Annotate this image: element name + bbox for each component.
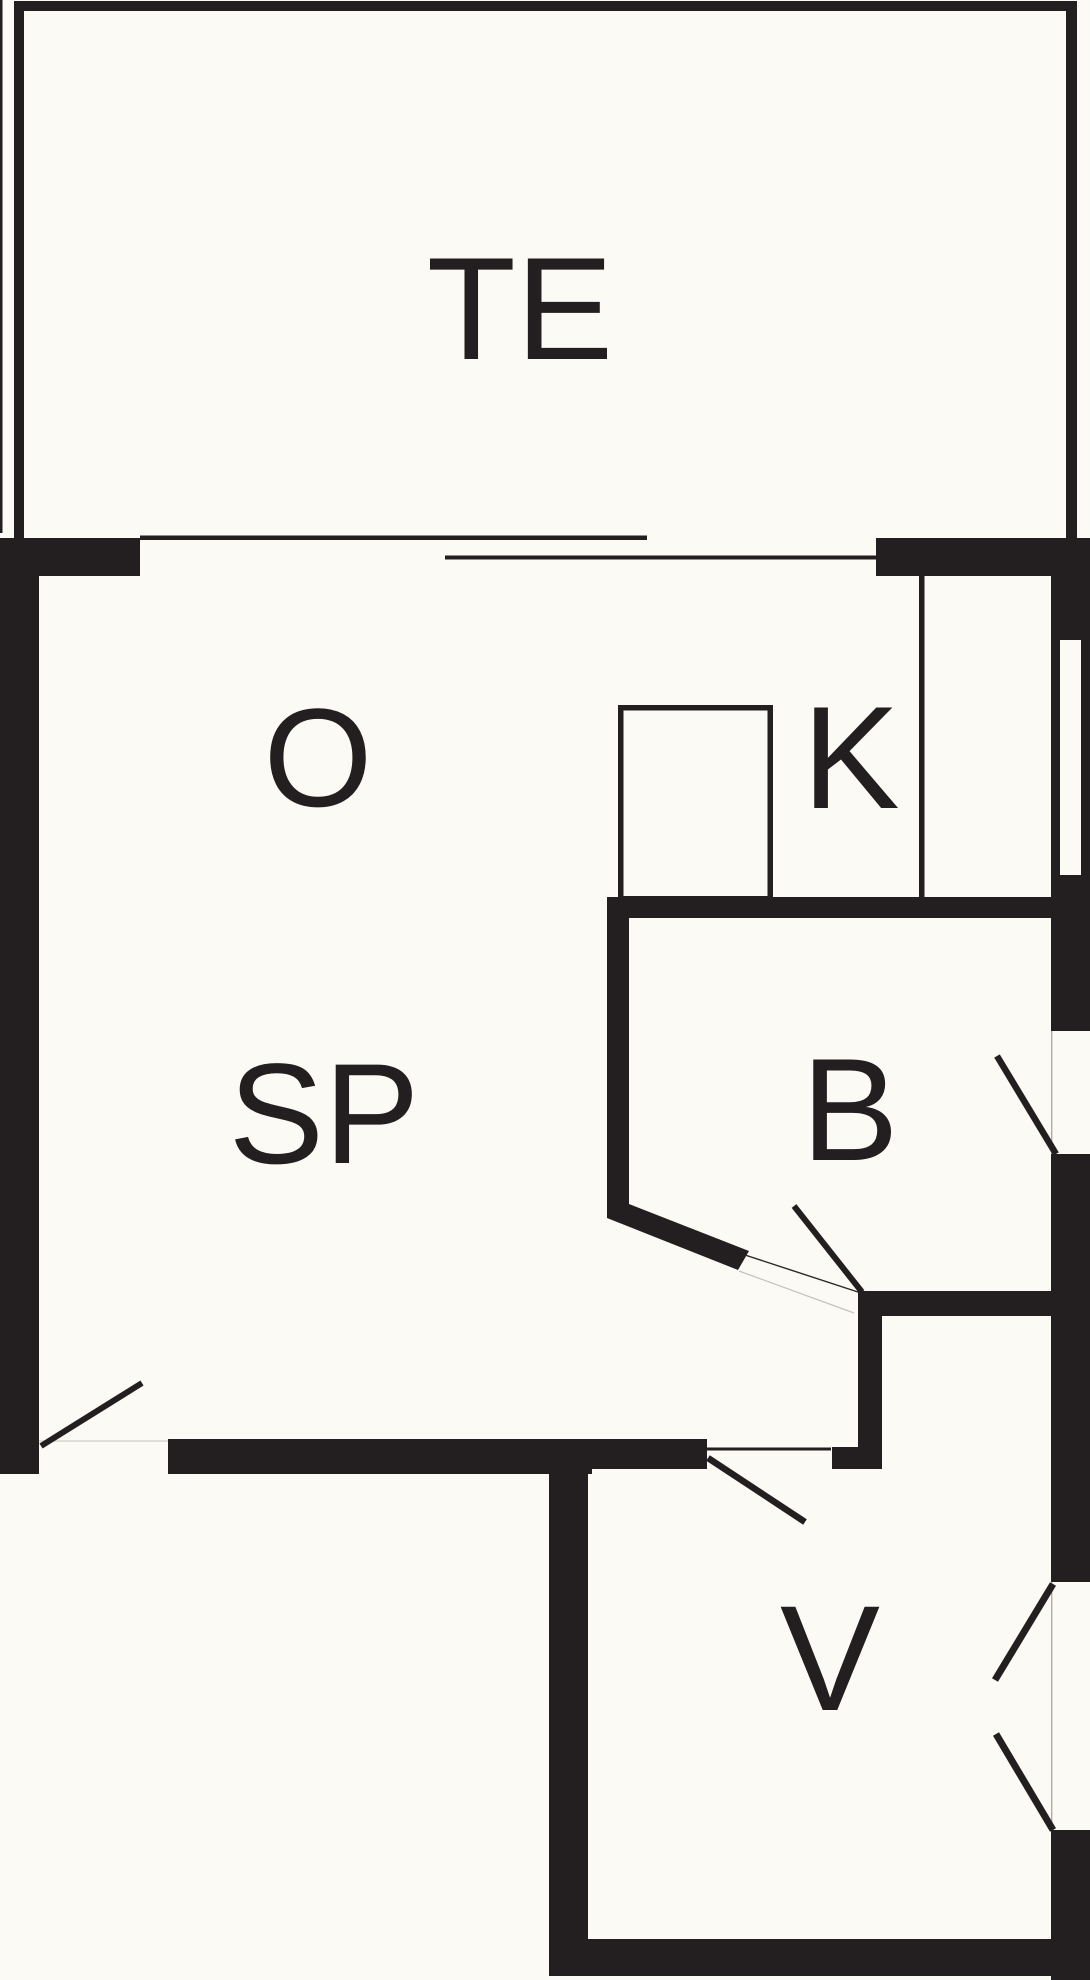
svg-text:B: B [801, 1028, 898, 1191]
svg-text:K: K [802, 676, 899, 839]
svg-text:TE: TE [427, 227, 614, 390]
svg-text:V: V [780, 1574, 880, 1742]
svg-text:SP: SP [229, 1035, 420, 1194]
svg-text:O: O [264, 679, 373, 836]
